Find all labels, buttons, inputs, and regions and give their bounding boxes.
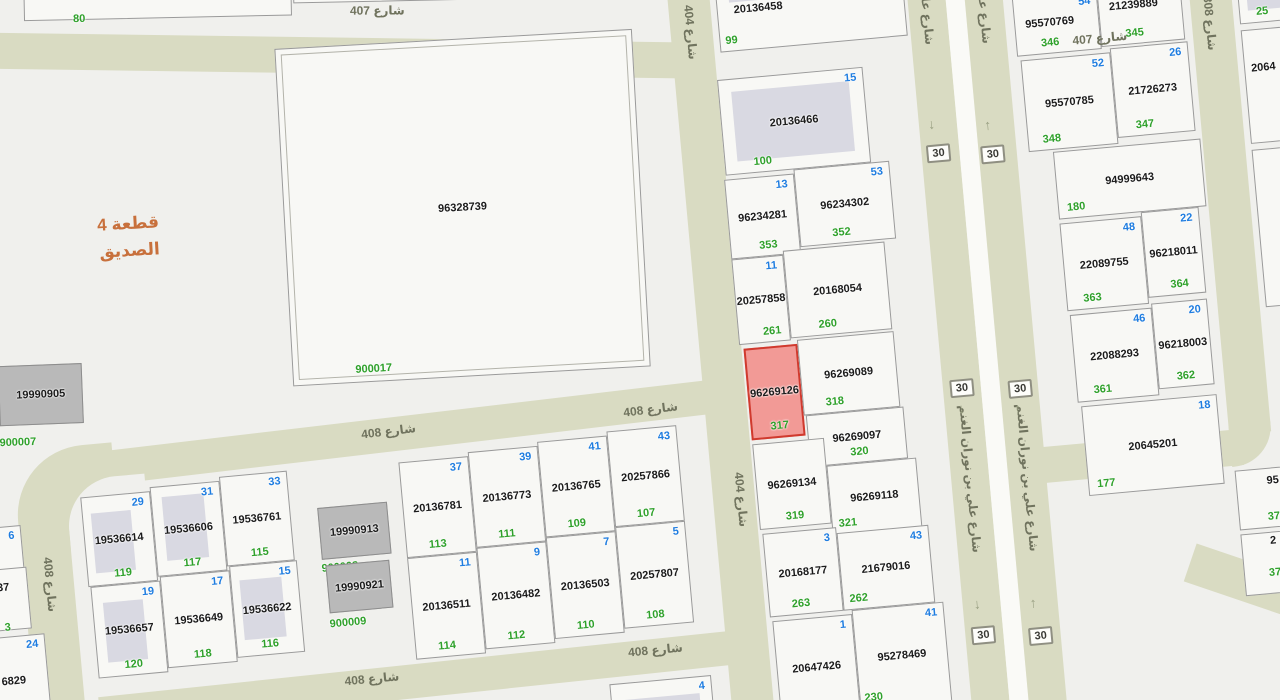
plot-number-green: 3	[4, 621, 11, 634]
plot-number-green: 345	[1125, 26, 1144, 40]
parcel-number: 6829	[1, 674, 26, 688]
parcel-number: 96269126	[750, 384, 800, 400]
corner-number-blue: 4	[698, 680, 705, 693]
parcel-number: 19536761	[232, 510, 282, 526]
parcel-95[interactable]: 95372	[1235, 455, 1280, 530]
speed-limit-badge: 30	[971, 625, 997, 645]
parcel-20645201[interactable]: 2064520117718	[1081, 394, 1225, 496]
parcel-2064[interactable]: 2064	[1241, 15, 1280, 144]
parcel-95570769[interactable]: 9557076934654	[1007, 0, 1102, 57]
parcel-96218003[interactable]: 9621800336220	[1151, 299, 1215, 390]
plot-number-green: 361	[1093, 383, 1112, 397]
parcel-96269089[interactable]: 96269089318	[797, 331, 900, 415]
parcel-20257858[interactable]: 2025785826111	[731, 255, 791, 345]
parcel-19536614[interactable]: 1953661411929	[80, 491, 158, 587]
plot-number-green: 110	[576, 618, 595, 632]
corner-number-blue: 37	[449, 461, 462, 474]
parcel-37[interactable]: 373	[0, 567, 32, 636]
parcel-20136466[interactable]: 2013646610015	[717, 67, 871, 176]
parcel-96269134[interactable]: 96269134319	[752, 438, 831, 530]
plot-number-green: 107	[636, 506, 655, 520]
parcel-95278469[interactable]: 9527846923041	[852, 602, 953, 700]
plot-number-green: 352	[832, 226, 851, 240]
parcel-95570785[interactable]: 9557078534852	[1021, 52, 1119, 152]
speed-limit-badge: 30	[1007, 379, 1033, 399]
parcel-number: 95570769	[1025, 14, 1075, 30]
parcel-21679016[interactable]: 2167901626243	[837, 525, 936, 611]
parcel-number: 19990905	[16, 388, 65, 402]
corner-number-blue: 43	[657, 430, 670, 443]
parcel-number: 20645201	[1128, 437, 1178, 453]
parcel-number: 96218011	[1149, 244, 1198, 260]
corner-number-blue: 43	[909, 529, 922, 542]
parcel-number: 22089755	[1079, 256, 1129, 272]
plot-number-green: 116	[261, 637, 280, 651]
corner-number-blue: 20	[1188, 303, 1201, 316]
parcel[interactable]: 25	[1230, 0, 1280, 24]
parcel-96234281[interactable]: 9623428135313	[724, 173, 801, 259]
parcel-19536606[interactable]: 1953660611731	[150, 481, 228, 577]
plot-number-green: 37	[1268, 566, 1280, 579]
parcel-20136503[interactable]: 201365031107	[546, 531, 625, 639]
corner-number-blue: 54	[1078, 0, 1091, 8]
parcel-20136773[interactable]: 2013677311139	[468, 446, 546, 548]
parcel-20168177[interactable]: 201681772633	[762, 527, 843, 617]
parcel-20136458[interactable]: 2013645899	[705, 0, 907, 53]
parcel-number: 21726273	[1128, 81, 1178, 97]
parcel-20257807[interactable]: 202578071085	[615, 521, 694, 629]
plot-number-green: 262	[849, 592, 868, 606]
plot-number-green: 230	[864, 691, 883, 700]
parcel-19536761[interactable]: 1953676111533	[219, 471, 295, 567]
parcel-number: 20168054	[813, 282, 863, 298]
parcel-20136765[interactable]: 2013676510941	[537, 436, 615, 538]
corner-number-blue: 33	[268, 475, 281, 488]
building-footprint	[618, 693, 705, 700]
corner-number-blue: 11	[459, 556, 472, 569]
plot-number-green: 364	[1170, 277, 1189, 291]
street-name-label: شارع 407	[350, 3, 405, 17]
parcel-2[interactable]: 237	[1240, 519, 1280, 596]
parcel-number: 96234302	[820, 196, 870, 212]
plot-number-green: 80	[73, 13, 85, 25]
parcel-22088293[interactable]: 2208829336146	[1070, 308, 1160, 403]
plot-number-green: 114	[438, 639, 457, 653]
parcel[interactable]: 4	[609, 675, 718, 700]
parcel[interactable]	[291, 0, 568, 3]
plot-number-green: 348	[1042, 132, 1061, 146]
parcel-number: 95570785	[1045, 94, 1095, 110]
direction-arrow-icon: ↑	[1013, 401, 1021, 416]
parcel-96328739[interactable]: 96328739900017	[274, 29, 650, 386]
parcel-6829[interactable]: 682924	[0, 633, 51, 700]
parcel-number: 96269097	[832, 429, 882, 445]
corner-number-blue: 3	[823, 532, 830, 545]
corner-number-blue: 31	[200, 485, 213, 498]
parcel-19990921[interactable]: 19990921900009	[325, 560, 393, 614]
direction-arrow-icon: ↑	[984, 117, 992, 132]
plot-number-green: 108	[646, 608, 665, 622]
plot-number-green: 353	[759, 238, 778, 252]
street-308-corner	[1228, 421, 1274, 467]
map-tilt-layer: قطعة 4 الصديق شارع 407شارع 407شارع 408شا…	[0, 0, 1280, 700]
corner-number-blue: 41	[588, 440, 601, 453]
plot-number-green: 119	[114, 566, 133, 580]
corner-number-blue: 15	[278, 565, 291, 578]
selected-parcel[interactable]: 96269126317	[743, 344, 805, 441]
direction-arrow-icon: ↑	[1029, 595, 1037, 610]
block-label: قطعة 4 الصديق	[62, 206, 195, 267]
plot-number-green: 115	[250, 546, 269, 560]
parcel-number: 96234281	[738, 208, 788, 224]
direction-arrow-icon: ↓	[927, 117, 935, 132]
plot-number-green: 177	[1097, 477, 1116, 491]
plot-number-green: 318	[825, 395, 844, 409]
parcel-number: 20168177	[778, 564, 828, 580]
corner-number-blue: 39	[519, 450, 532, 463]
parcel-96269118[interactable]: 96269118321	[826, 458, 922, 536]
parcel-20647426[interactable]: 206474261	[772, 614, 861, 700]
parcel-number: 20647426	[792, 659, 842, 675]
corner-number-blue: 48	[1122, 221, 1135, 234]
plot-number-green: 362	[1176, 369, 1195, 383]
parcel-number: 96328739	[438, 200, 488, 215]
parcel-20136511[interactable]: 2013651111411	[407, 552, 486, 660]
plot-number-green: 347	[1135, 118, 1154, 132]
plot-number-green: 100	[753, 154, 772, 168]
corner-number-blue: 29	[131, 496, 144, 509]
parcel-number: 96269134	[767, 476, 817, 492]
plot-number-green: 99	[725, 34, 738, 47]
plot-number-green: 320	[850, 445, 869, 459]
corner-number-blue: 41	[924, 606, 937, 619]
parcel-number: 2064	[1251, 60, 1276, 74]
parcel-22089755[interactable]: 2208975536348	[1059, 216, 1149, 311]
parcel-number: 20257866	[621, 468, 671, 484]
plot-number-green: 180	[1067, 200, 1086, 214]
plot-number-green: 321	[838, 516, 857, 530]
plot-number-green: 363	[1083, 291, 1102, 305]
corner-number-blue: 9	[533, 546, 540, 559]
plot-number-green: 317	[770, 419, 789, 433]
parcel-19536649[interactable]: 1953664911817	[160, 570, 238, 668]
plot-number-green: 261	[762, 324, 781, 338]
parcel-number: 19990913	[329, 523, 379, 539]
parcel-number: 95	[1266, 474, 1279, 487]
parcel-number: 20257807	[630, 567, 680, 583]
speed-limit-badge: 30	[980, 144, 1006, 164]
plot-number-green: 263	[791, 597, 810, 611]
parcel-number: 96269118	[850, 488, 899, 504]
plot-number-green: 25	[1256, 5, 1269, 18]
parcel-number: 20136765	[551, 478, 601, 494]
corner-number-blue: 7	[603, 536, 610, 549]
parcel-number: 2	[1270, 534, 1277, 547]
parcel-number: 20136511	[422, 598, 471, 614]
plot-number-green: 117	[183, 556, 202, 570]
direction-arrow-icon: ↓	[957, 401, 965, 416]
parcel-number: 19536649	[174, 611, 224, 627]
parcel-number: 20136503	[560, 577, 610, 593]
parcel-19990905[interactable]: 19990905900007	[0, 363, 84, 426]
parcel-number: 96269089	[824, 365, 874, 381]
speed-limit-badge: 30	[949, 378, 975, 398]
parcel-20136781[interactable]: 2013678111337	[398, 456, 476, 558]
parcel[interactable]: 80	[22, 0, 292, 21]
parcel-19536657[interactable]: 1953665712019	[90, 581, 168, 679]
corner-number-blue: 5	[672, 525, 679, 538]
corner-number-blue: 6	[8, 530, 15, 543]
parcel-96218011[interactable]: 9621801136422	[1141, 207, 1207, 298]
corner-number-blue: 46	[1133, 312, 1146, 325]
corner-number-blue: 24	[26, 638, 39, 651]
corner-number-blue: 26	[1169, 46, 1182, 59]
parcel-20168054[interactable]: 20168054260	[783, 242, 893, 339]
plot-number-green: 111	[498, 527, 516, 541]
plot-number-green: 260	[818, 317, 837, 331]
parcel-21726273[interactable]: 2172627334726	[1110, 41, 1196, 138]
corner-number-blue: 17	[211, 575, 224, 588]
plot-number-green: 372	[1267, 509, 1280, 523]
parcel-number: 94999643	[1105, 171, 1155, 187]
corner-number-blue: 22	[1180, 212, 1193, 225]
plot-number-green: 112	[507, 629, 526, 643]
speed-limit-badge: 30	[1028, 626, 1054, 646]
plot-number-green: 319	[785, 509, 804, 523]
map-canvas[interactable]: قطعة 4 الصديق شارع 407شارع 407شارع 408شا…	[0, 0, 1280, 700]
parcel-number: 19990921	[335, 578, 385, 594]
parcel-number: 20136781	[413, 499, 463, 515]
plot-number-green: 900007	[0, 436, 37, 449]
parcel-number: 96218003	[1158, 336, 1208, 352]
parcel-number: 22088293	[1090, 347, 1140, 363]
corner-number-blue: 1	[839, 619, 846, 632]
parcel-number: 20257858	[736, 292, 786, 308]
parcel-number: 20136773	[482, 489, 532, 505]
plot-number-green: 900017	[355, 362, 392, 376]
parcel-number: 95278469	[877, 647, 927, 663]
parcel-19536622[interactable]: 1953662211615	[229, 560, 305, 658]
speed-limit-badge: 30	[926, 143, 952, 163]
corner-number-blue: 52	[1091, 57, 1104, 70]
plot-number-green: 120	[124, 658, 143, 672]
parcel-number: 20136458	[733, 0, 783, 16]
corner-number-blue: 13	[775, 178, 788, 191]
plot-number-green: 109	[567, 517, 586, 531]
corner-number-blue: 18	[1198, 399, 1211, 412]
plot-number-green: 346	[1041, 36, 1060, 50]
corner-number-blue: 15	[844, 71, 857, 84]
parcel-20136482[interactable]: 201364821129	[476, 541, 555, 649]
parcel-number: 21679016	[861, 560, 911, 576]
parcel-20257866[interactable]: 2025786610743	[606, 425, 684, 527]
parcel-number: 37	[0, 581, 10, 594]
corner-number-blue: 11	[765, 259, 778, 272]
plot-number-green: 900009	[329, 615, 367, 630]
plot-number-green: 113	[428, 537, 447, 551]
direction-arrow-icon: ↓	[973, 596, 981, 611]
parcel-number: 20136482	[491, 587, 541, 603]
block-label-line2: الصديق	[64, 233, 195, 267]
plot-number-green: 118	[193, 647, 212, 661]
corner-number-blue: 53	[870, 165, 883, 178]
parcel-number: 21239889	[1108, 0, 1158, 13]
parcel-96234302[interactable]: 9623430235253	[793, 161, 896, 247]
parcel-19990913[interactable]: 19990913900008	[317, 502, 391, 560]
corner-number-blue: 19	[141, 585, 154, 598]
